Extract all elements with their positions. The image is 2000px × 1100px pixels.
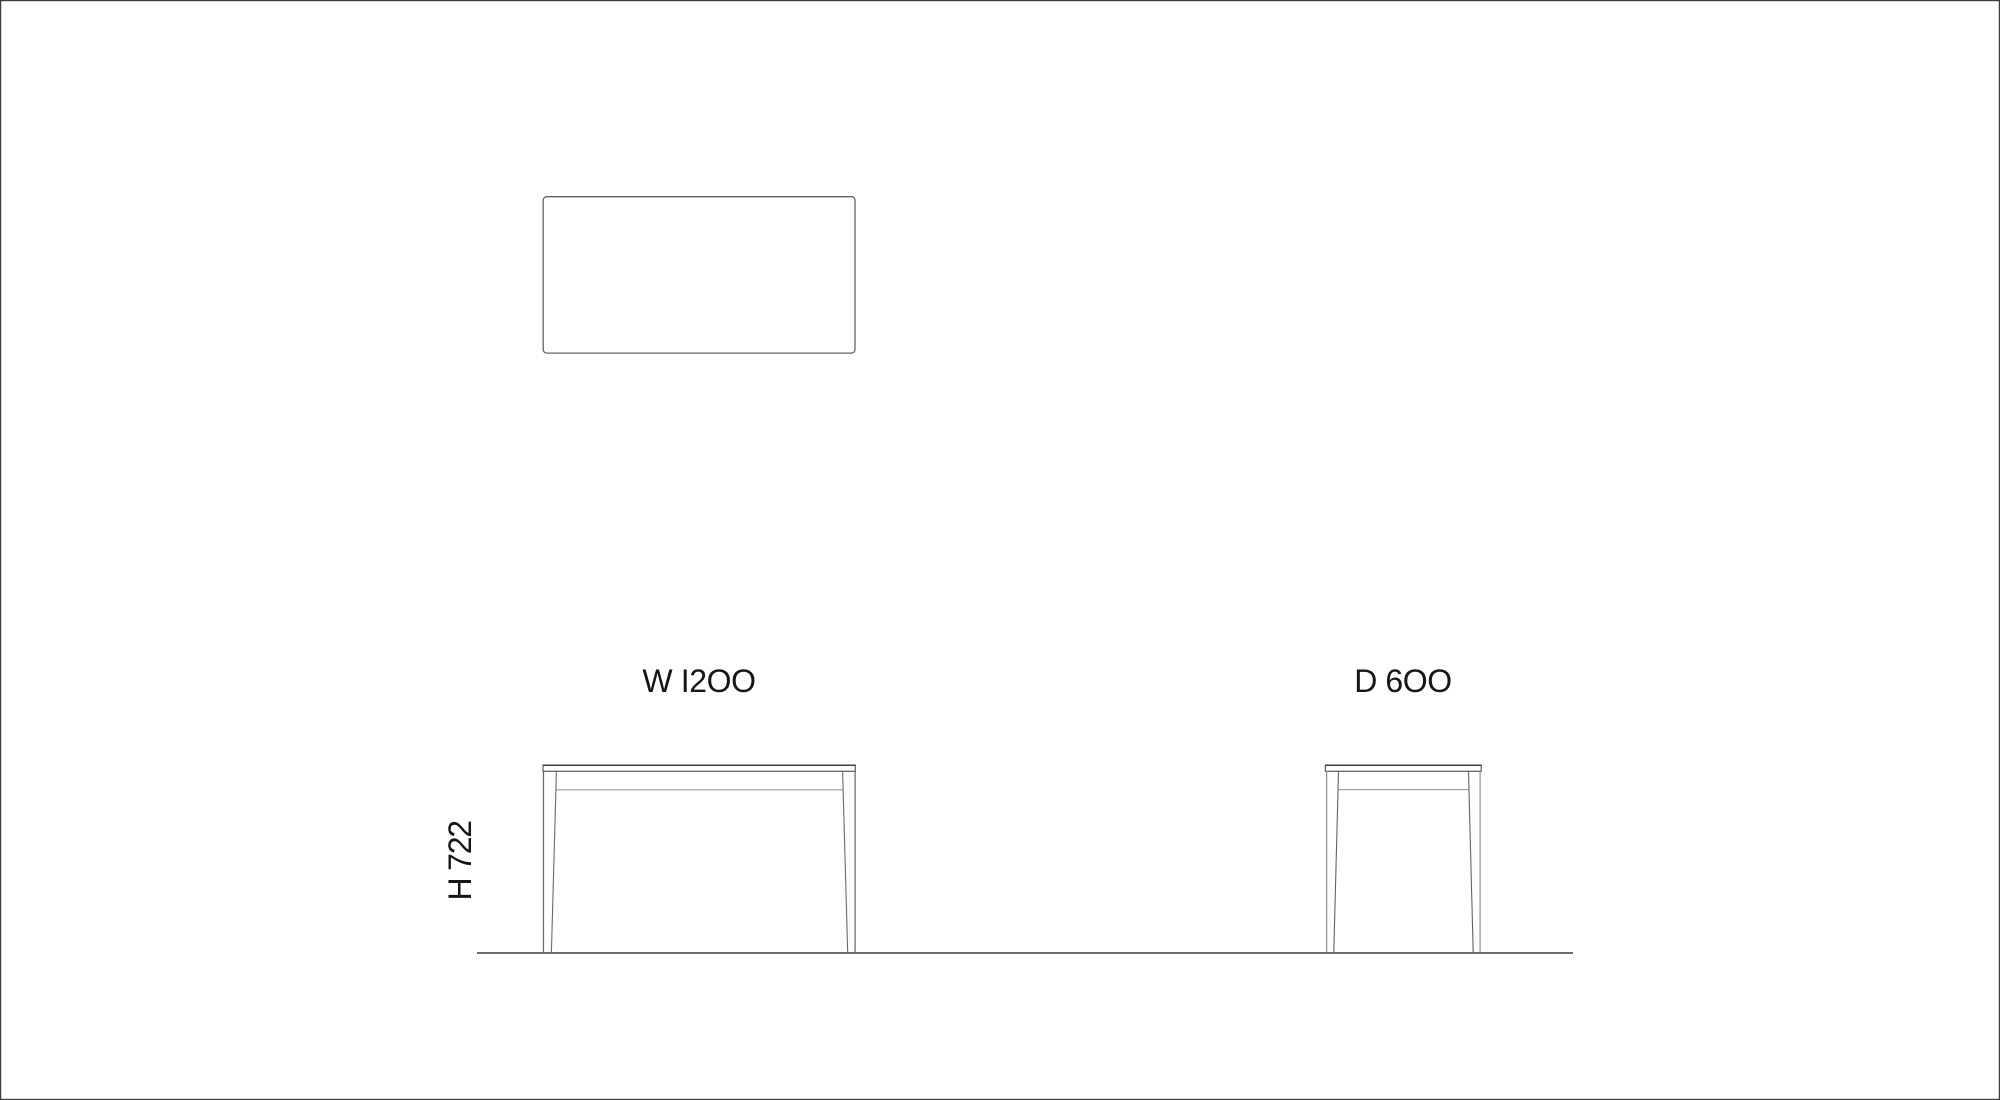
svg-text:W I2OO: W I2OO	[642, 663, 755, 699]
svg-text:H 722: H 722	[442, 821, 478, 901]
svg-text:D 6OO: D 6OO	[1354, 663, 1452, 699]
